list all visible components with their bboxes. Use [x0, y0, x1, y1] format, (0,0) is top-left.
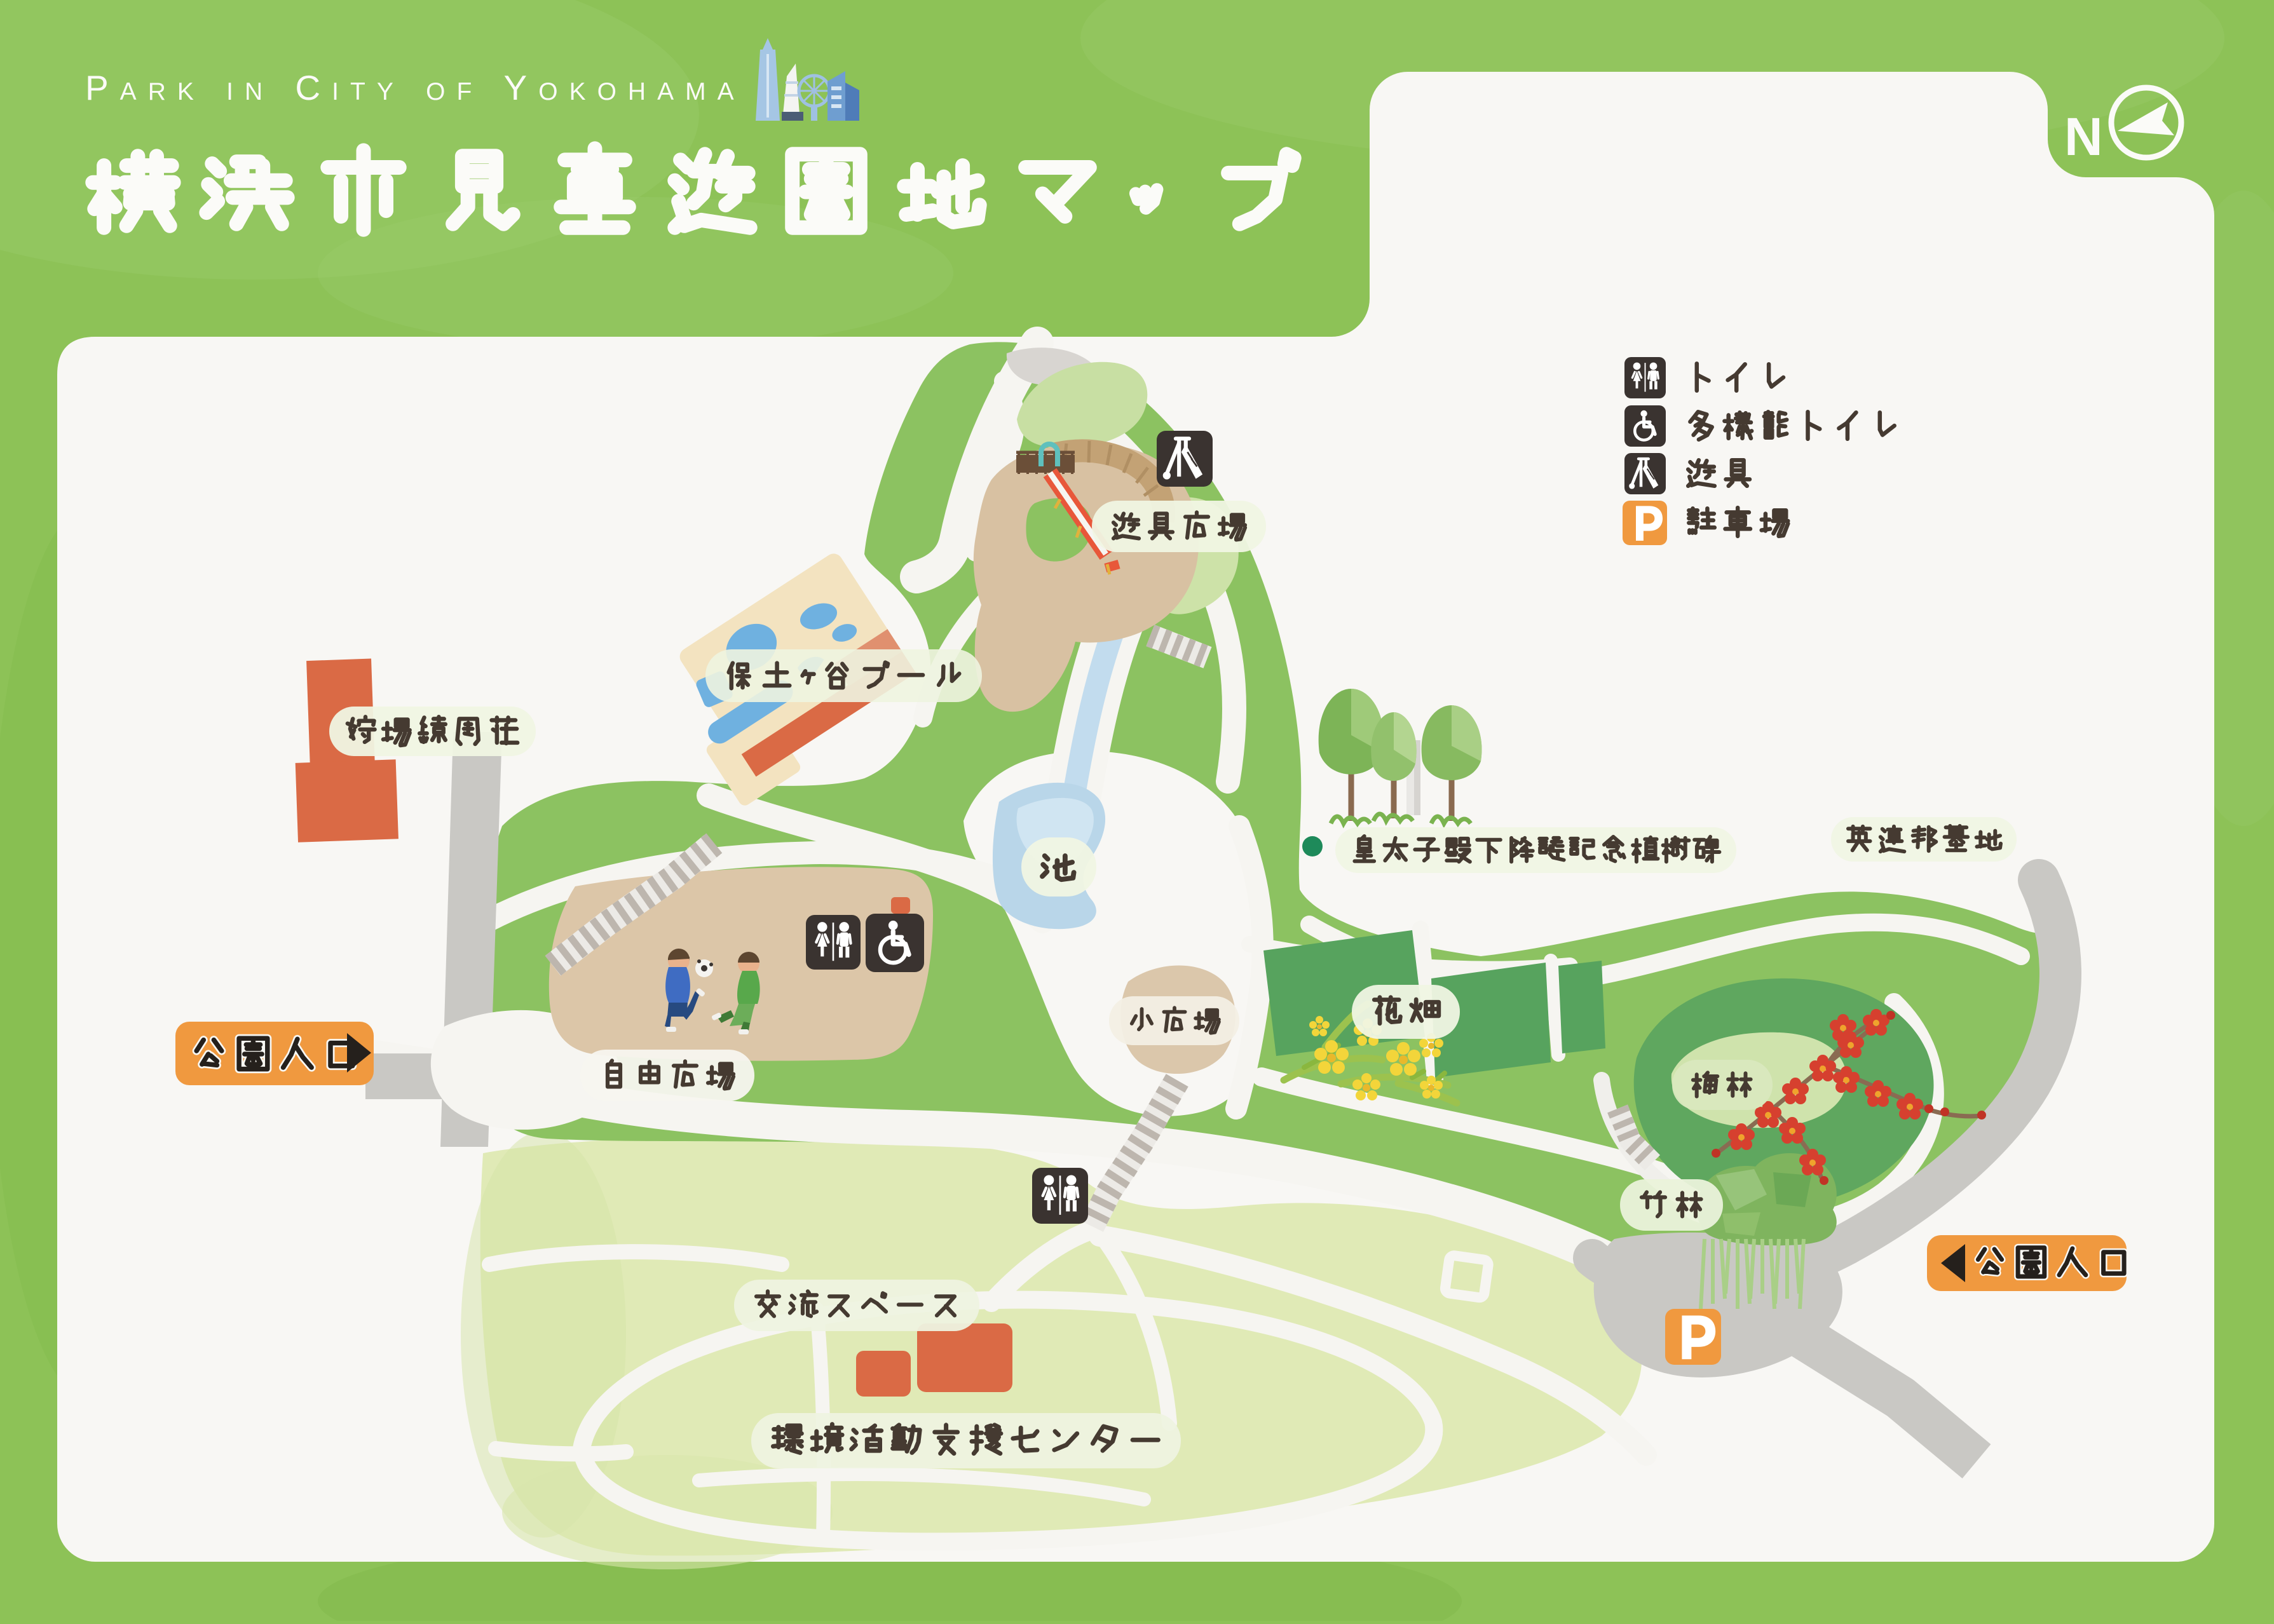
- svg-text:Park in City of Yokohama: Park in City of Yokohama: [85, 68, 746, 107]
- svg-text:N: N: [2064, 107, 2103, 166]
